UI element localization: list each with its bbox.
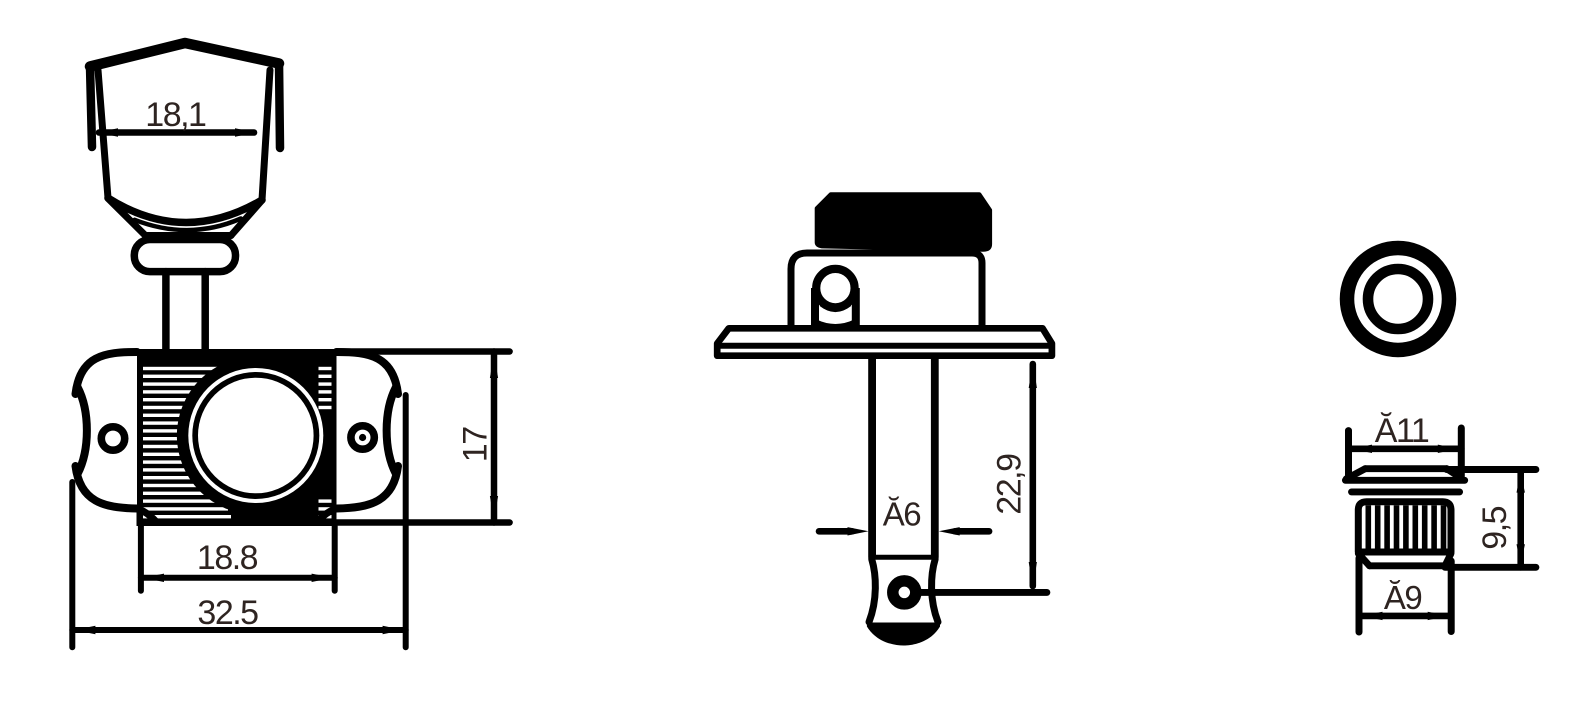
svg-text:Ă11: Ă11: [1375, 412, 1429, 450]
svg-text:Ă6: Ă6: [883, 495, 921, 532]
svg-text:Ă9: Ă9: [1384, 579, 1422, 616]
svg-text:22,9: 22,9: [991, 454, 1029, 515]
svg-text:9,5: 9,5: [1476, 506, 1514, 549]
svg-text:18,1: 18,1: [145, 96, 206, 134]
svg-text:17: 17: [457, 427, 495, 462]
svg-text:18.8: 18.8: [197, 539, 258, 577]
svg-text:32.5: 32.5: [197, 594, 258, 632]
